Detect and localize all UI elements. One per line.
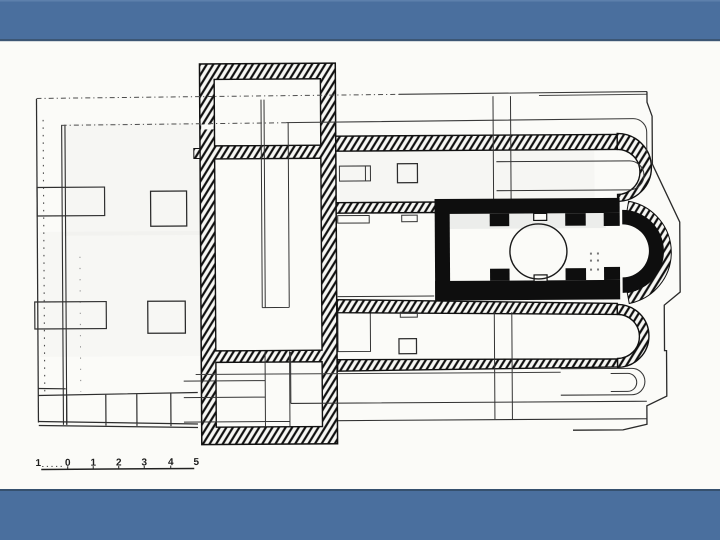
svg-text:5: 5	[193, 457, 199, 468]
svg-text:1: 1	[35, 458, 41, 469]
